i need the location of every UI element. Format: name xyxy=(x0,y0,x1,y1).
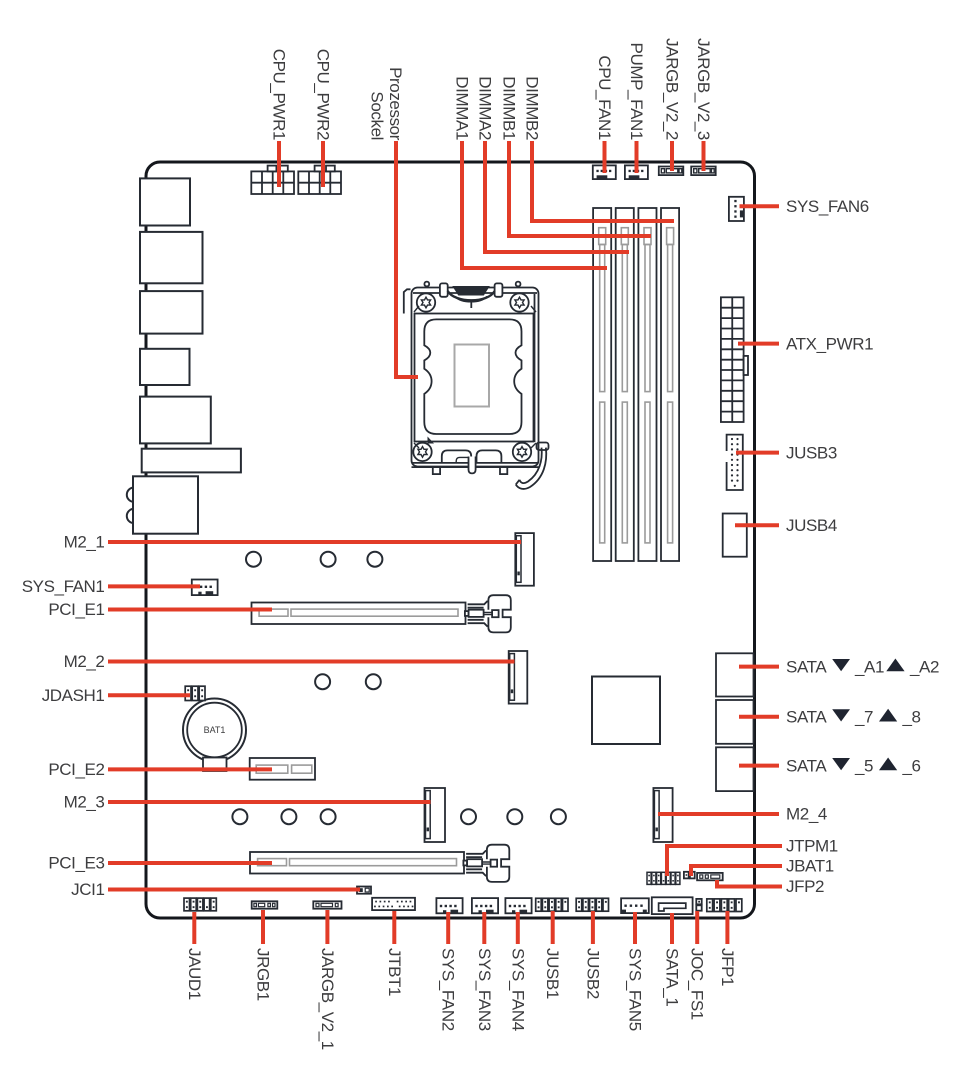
svg-text:Sockel: Sockel xyxy=(368,91,387,140)
svg-text:CPU_FAN1: CPU_FAN1 xyxy=(595,55,614,140)
svg-text:CPU_PWR1: CPU_PWR1 xyxy=(270,49,289,140)
svg-text:JCI1: JCI1 xyxy=(71,880,104,899)
svg-text:_7: _7 xyxy=(854,708,873,727)
svg-text:SYS_FAN1: SYS_FAN1 xyxy=(22,577,105,596)
svg-text:JARGB_V2_2: JARGB_V2_2 xyxy=(663,38,682,140)
svg-text:_8: _8 xyxy=(902,708,921,727)
svg-text:_6: _6 xyxy=(902,756,921,775)
svg-text:JFP1: JFP1 xyxy=(718,948,737,986)
svg-text:SATA: SATA xyxy=(786,657,827,676)
svg-text:JDASH1: JDASH1 xyxy=(42,686,105,705)
svg-text:DIMMB1: DIMMB1 xyxy=(500,76,519,140)
svg-text:JARGB_V2_1: JARGB_V2_1 xyxy=(318,948,337,1050)
svg-text:JAUD1: JAUD1 xyxy=(185,948,204,1000)
svg-text:PCI_E2: PCI_E2 xyxy=(48,760,104,779)
svg-text:SYS_FAN5: SYS_FAN5 xyxy=(626,948,645,1031)
svg-text:JBAT1: JBAT1 xyxy=(786,857,834,876)
svg-text:SYS_FAN2: SYS_FAN2 xyxy=(439,948,458,1031)
svg-text:SYS_FAN4: SYS_FAN4 xyxy=(508,948,527,1031)
svg-text:JTBT1: JTBT1 xyxy=(385,948,404,996)
svg-text:JUSB3: JUSB3 xyxy=(786,443,837,462)
svg-text:ATX_PWR1: ATX_PWR1 xyxy=(786,334,873,353)
svg-text:JFP2: JFP2 xyxy=(786,877,824,896)
svg-text:SYS_FAN3: SYS_FAN3 xyxy=(475,948,494,1031)
svg-text:JTPM1: JTPM1 xyxy=(786,837,838,856)
svg-text:_A1: _A1 xyxy=(854,657,884,676)
svg-text:JUSB4: JUSB4 xyxy=(786,516,837,535)
svg-text:SATA: SATA xyxy=(786,708,827,727)
svg-text:M2_2: M2_2 xyxy=(64,652,105,671)
svg-text:JUSB2: JUSB2 xyxy=(583,948,602,999)
svg-text:SYS_FAN6: SYS_FAN6 xyxy=(786,197,869,216)
svg-text:PCI_E3: PCI_E3 xyxy=(48,854,104,873)
svg-text:DIMMA2: DIMMA2 xyxy=(476,76,495,140)
svg-text:JRGB1: JRGB1 xyxy=(254,948,273,1001)
svg-text:JARGB_V2_3: JARGB_V2_3 xyxy=(694,38,713,140)
svg-text:JUSB1: JUSB1 xyxy=(543,948,562,999)
svg-text:PCI_E1: PCI_E1 xyxy=(48,600,104,619)
svg-text:SATA_1: SATA_1 xyxy=(663,948,682,1006)
svg-text:PUMP_FAN1: PUMP_FAN1 xyxy=(627,43,646,141)
svg-text:DIMMB2: DIMMB2 xyxy=(523,76,542,140)
svg-text:DIMMA1: DIMMA1 xyxy=(453,76,472,140)
svg-text:BAT1: BAT1 xyxy=(204,725,226,735)
svg-text:M2_3: M2_3 xyxy=(64,793,105,812)
svg-text:M2_4: M2_4 xyxy=(786,805,827,824)
svg-text:_A2: _A2 xyxy=(909,657,939,676)
svg-text:JOC_FS1: JOC_FS1 xyxy=(688,948,707,1020)
svg-text:Prozessor: Prozessor xyxy=(386,67,405,141)
svg-text:CPU_PWR2: CPU_PWR2 xyxy=(314,49,333,140)
svg-text:_5: _5 xyxy=(854,756,873,775)
svg-text:SATA: SATA xyxy=(786,756,827,775)
svg-text:M2_1: M2_1 xyxy=(64,533,105,552)
